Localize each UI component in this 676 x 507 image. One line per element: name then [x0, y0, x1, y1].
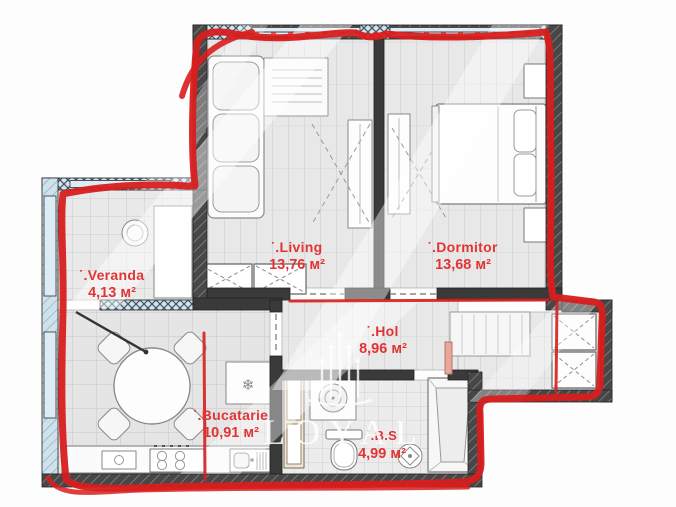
label-bullet: ▪: [367, 428, 370, 435]
room-area: 13,68 м²: [428, 256, 498, 275]
red-line-dressing: [556, 303, 557, 392]
room-name: .Dormitor: [432, 239, 498, 255]
appliance: [102, 451, 136, 469]
room-area: 8,96 м²: [359, 340, 407, 359]
room-name: .B.S: [371, 428, 397, 443]
tv-unit-living: [348, 120, 372, 228]
floor-plan: ❄: [0, 0, 676, 507]
window: [44, 332, 56, 418]
snowflake-icon: ❄: [242, 377, 255, 394]
window: [44, 196, 56, 296]
room-name: .Bucatarie: [198, 407, 269, 423]
floor-plan-drawing: ❄: [0, 0, 676, 507]
room-label-veranda: ▪.Veranda 4,13 м²: [80, 266, 145, 303]
room-area: 13,76 м²: [269, 256, 325, 275]
room-area: 4,99 м²: [358, 445, 406, 464]
label-bullet: ▪: [428, 240, 431, 247]
label-bullet: ▪: [271, 240, 274, 247]
room-label-bs: ▪.B.S 4,99 м²: [358, 427, 406, 464]
door-leaf-bath: [445, 342, 452, 374]
room-label-dormitor: ▪.Dormitor 13,68 м²: [428, 238, 498, 275]
nightstand: [524, 208, 548, 242]
label-bullet: ▪: [194, 408, 197, 415]
room-area: 10,91 м²: [194, 424, 269, 443]
room-name: .Living: [275, 239, 322, 255]
nightstand: [524, 64, 548, 98]
label-bullet: ▪: [80, 268, 83, 275]
label-bullet: ▪: [367, 324, 370, 331]
room-label-hol: ▪.Hol 8,96 м²: [359, 322, 407, 359]
room-label-bucatarie: ▪.Bucatarie 10,91 м²: [194, 406, 269, 443]
room-name: .Hol: [371, 323, 399, 339]
red-line-hol-top: [290, 300, 548, 301]
room-area: 4,13 м²: [80, 284, 145, 303]
room-label-living: ▪.Living 13,76 м²: [269, 238, 325, 275]
room-name: .Veranda: [84, 267, 145, 283]
